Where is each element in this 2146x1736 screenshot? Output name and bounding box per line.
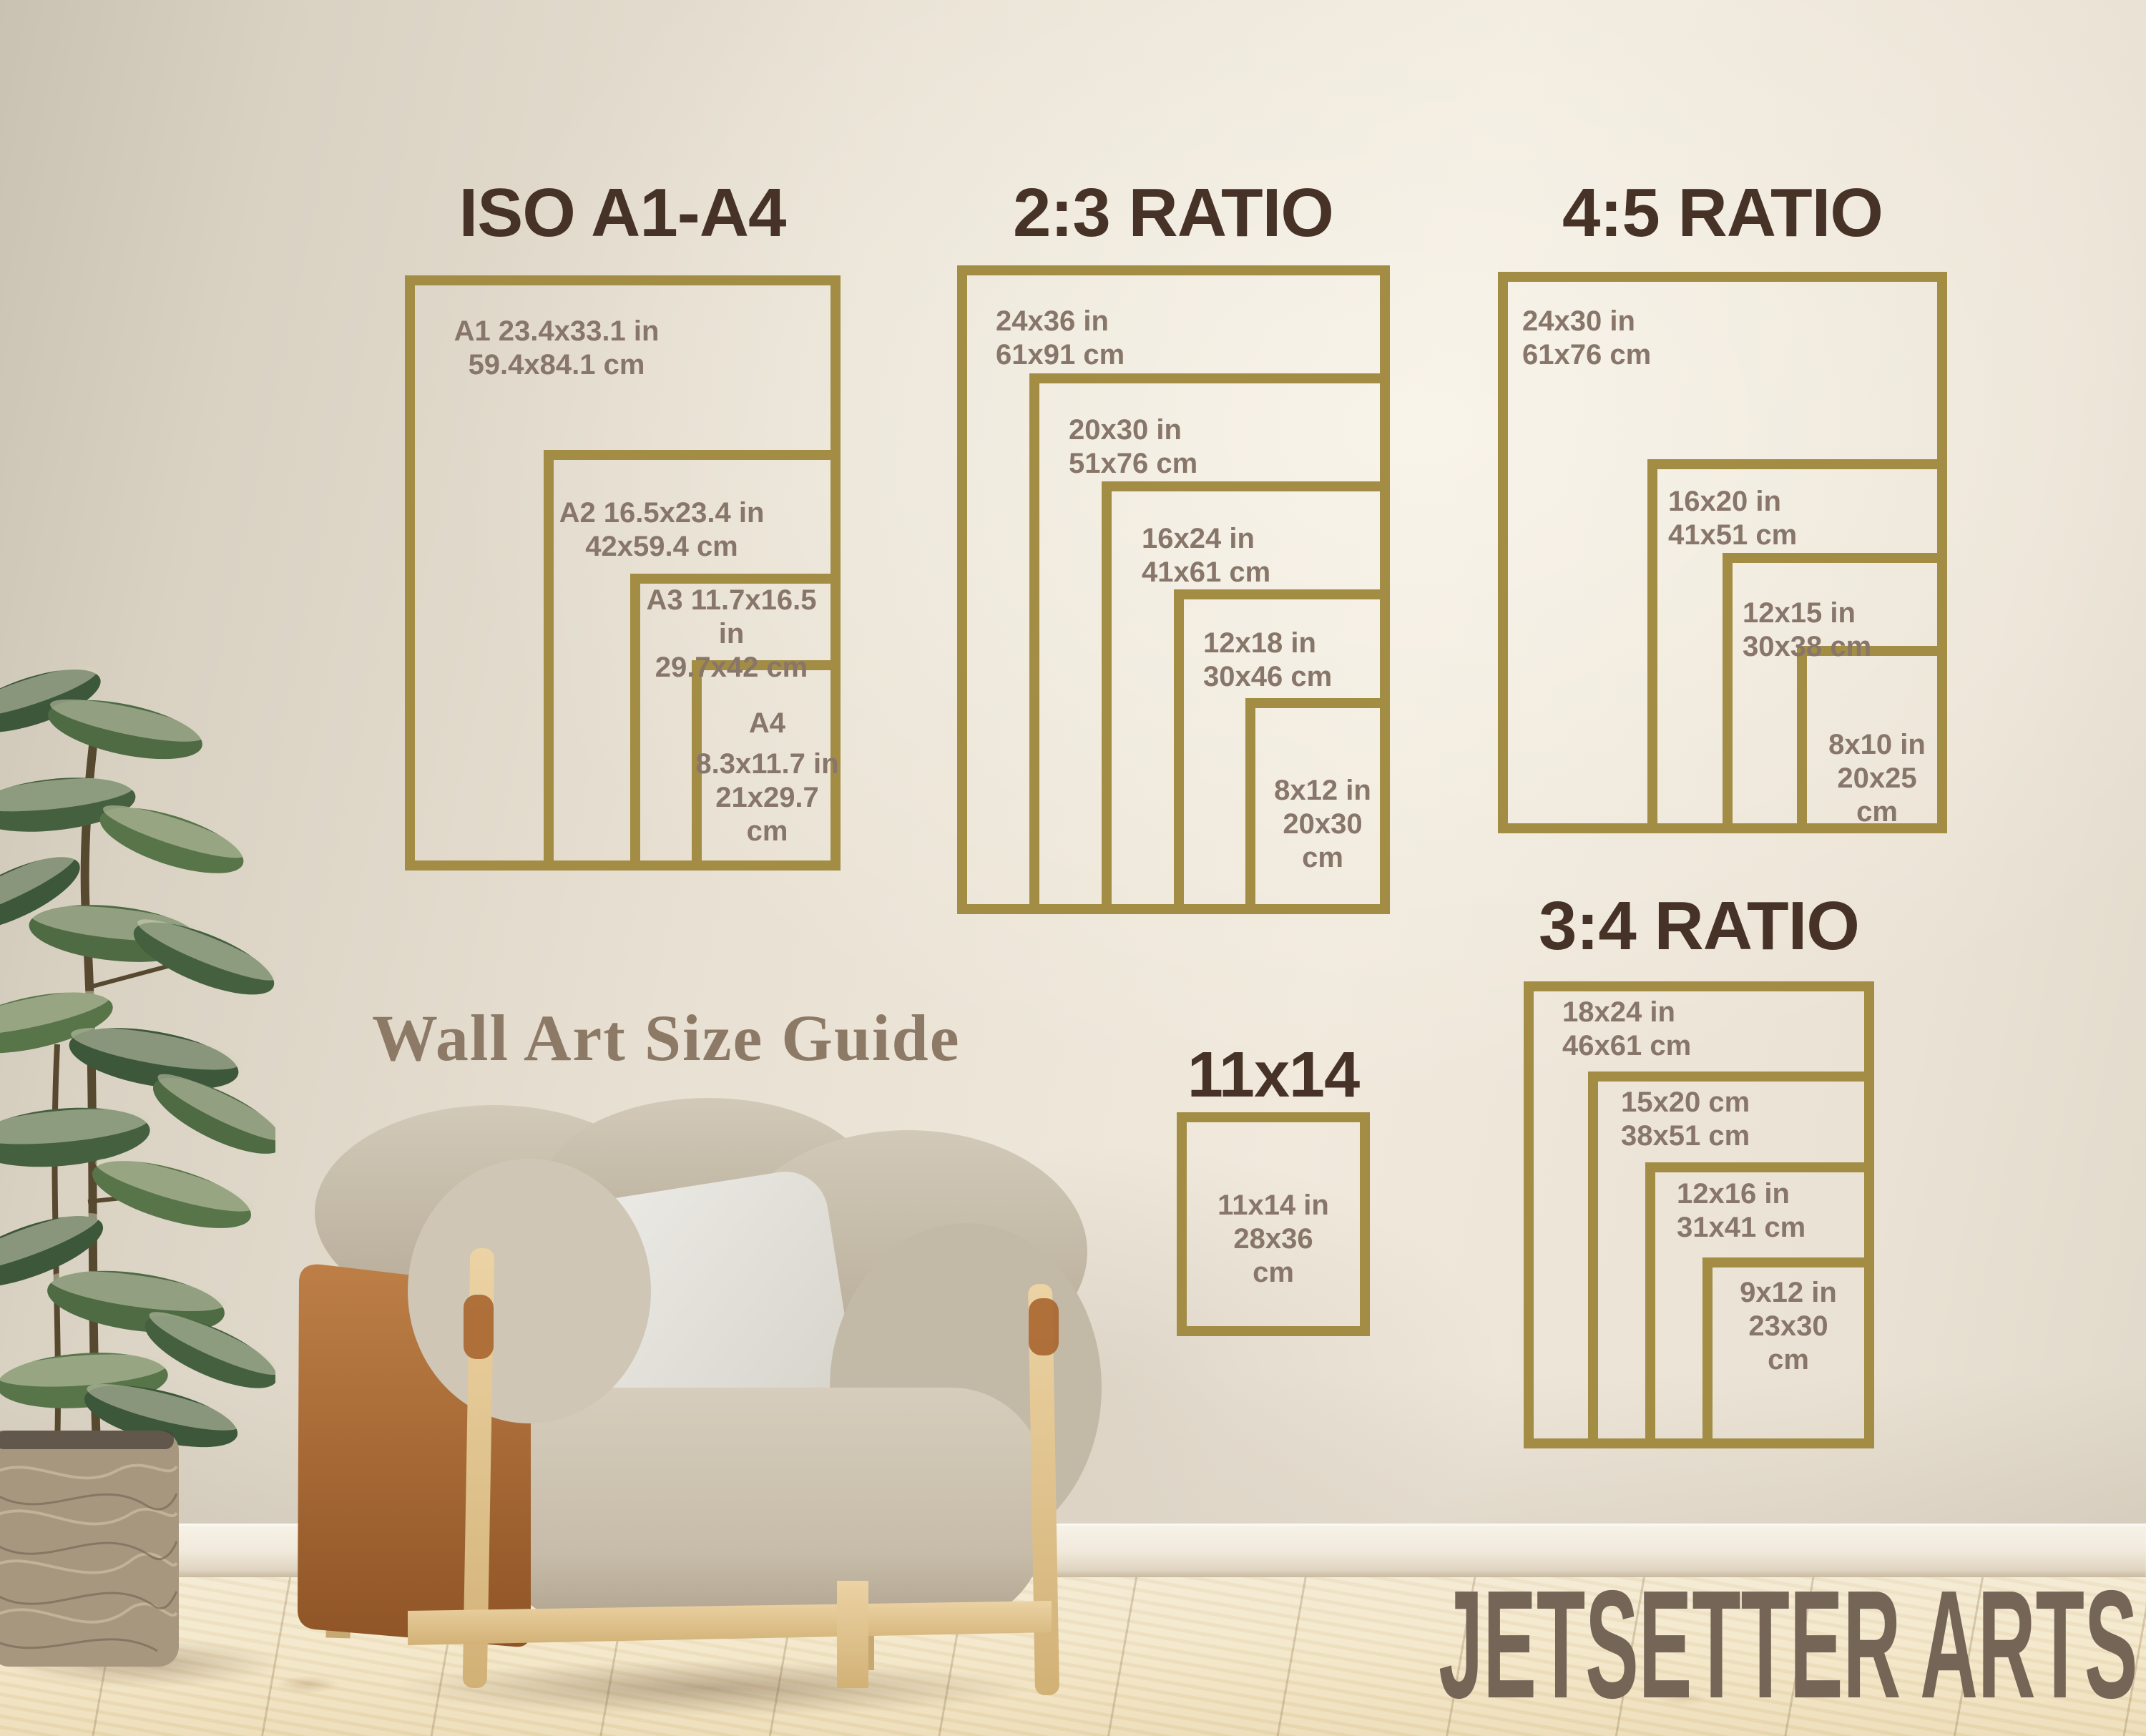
frame-label-8x10: 8x10 in 20x25 cm (1807, 728, 1947, 829)
frame-label-12x16: 12x16 in31x41 cm (1677, 1177, 1806, 1245)
group-title-11x14: 11x14 (1187, 1039, 1359, 1112)
frame-label-16x20: 16x20 in41x51 cm (1668, 485, 1797, 552)
frame-label-a3: A3 11.7x16.5 in29.7x42 cm (633, 584, 830, 685)
frame-label-20x30: 20x30 in51x76 cm (1069, 413, 1197, 481)
brand-watermark: JETSETTER ARTS (1439, 1556, 2137, 1733)
group-title-3-4: 3:4 RATIO (1539, 887, 1859, 966)
armchair (279, 1080, 1102, 1724)
chair-seat-cushion (494, 1388, 1044, 1624)
chair-left-arm-cushion (408, 1159, 651, 1423)
room-mockup: ISO A1-A4 A1 23.4x33.1 in59.4x84.1 cm A2… (0, 0, 2146, 1736)
plant-leaves (0, 657, 275, 1460)
frame-label-16x24: 16x24 in41x61 cm (1142, 522, 1270, 589)
frame-label-24x30: 24x30 in61x76 cm (1522, 305, 1651, 372)
frame-label-a2: A2 16.5x23.4 in42x59.4 cm (554, 496, 769, 564)
group-title-2-3: 2:3 RATIO (1013, 174, 1333, 252)
frame-label-24x36: 24x36 in61x91 cm (996, 305, 1125, 372)
woven-basket (0, 1431, 179, 1667)
frame-label-8x12: 8x12 in 20x30 cm (1255, 774, 1390, 875)
frame-label-a4: A4 8.3x11.7 in 21x29.7 cm (680, 707, 855, 848)
page-subtitle: Wall Art Size Guide (372, 1000, 961, 1076)
frame-label-12x18: 12x18 in30x46 cm (1203, 627, 1332, 694)
frame-label-18x24: 18x24 in46x61 cm (1562, 996, 1691, 1063)
potted-plant (0, 615, 275, 1702)
frame-label-a1: A1 23.4x33.1 in59.4x84.1 cm (428, 315, 685, 382)
group-title-iso: ISO A1-A4 (459, 174, 786, 252)
frame-label-15x20: 15x20 cm38x51 cm (1621, 1086, 1750, 1153)
group-title-4-5: 4:5 RATIO (1562, 174, 1883, 252)
frame-label-12x15: 12x15 in30x38 cm (1743, 597, 1871, 664)
frame-label-9x12: 9x12 in 23x30 cm (1711, 1276, 1866, 1377)
chair-front-right-leg (837, 1581, 868, 1688)
frame-label-11x14: 11x14 in 28x36 cm (1187, 1189, 1360, 1290)
